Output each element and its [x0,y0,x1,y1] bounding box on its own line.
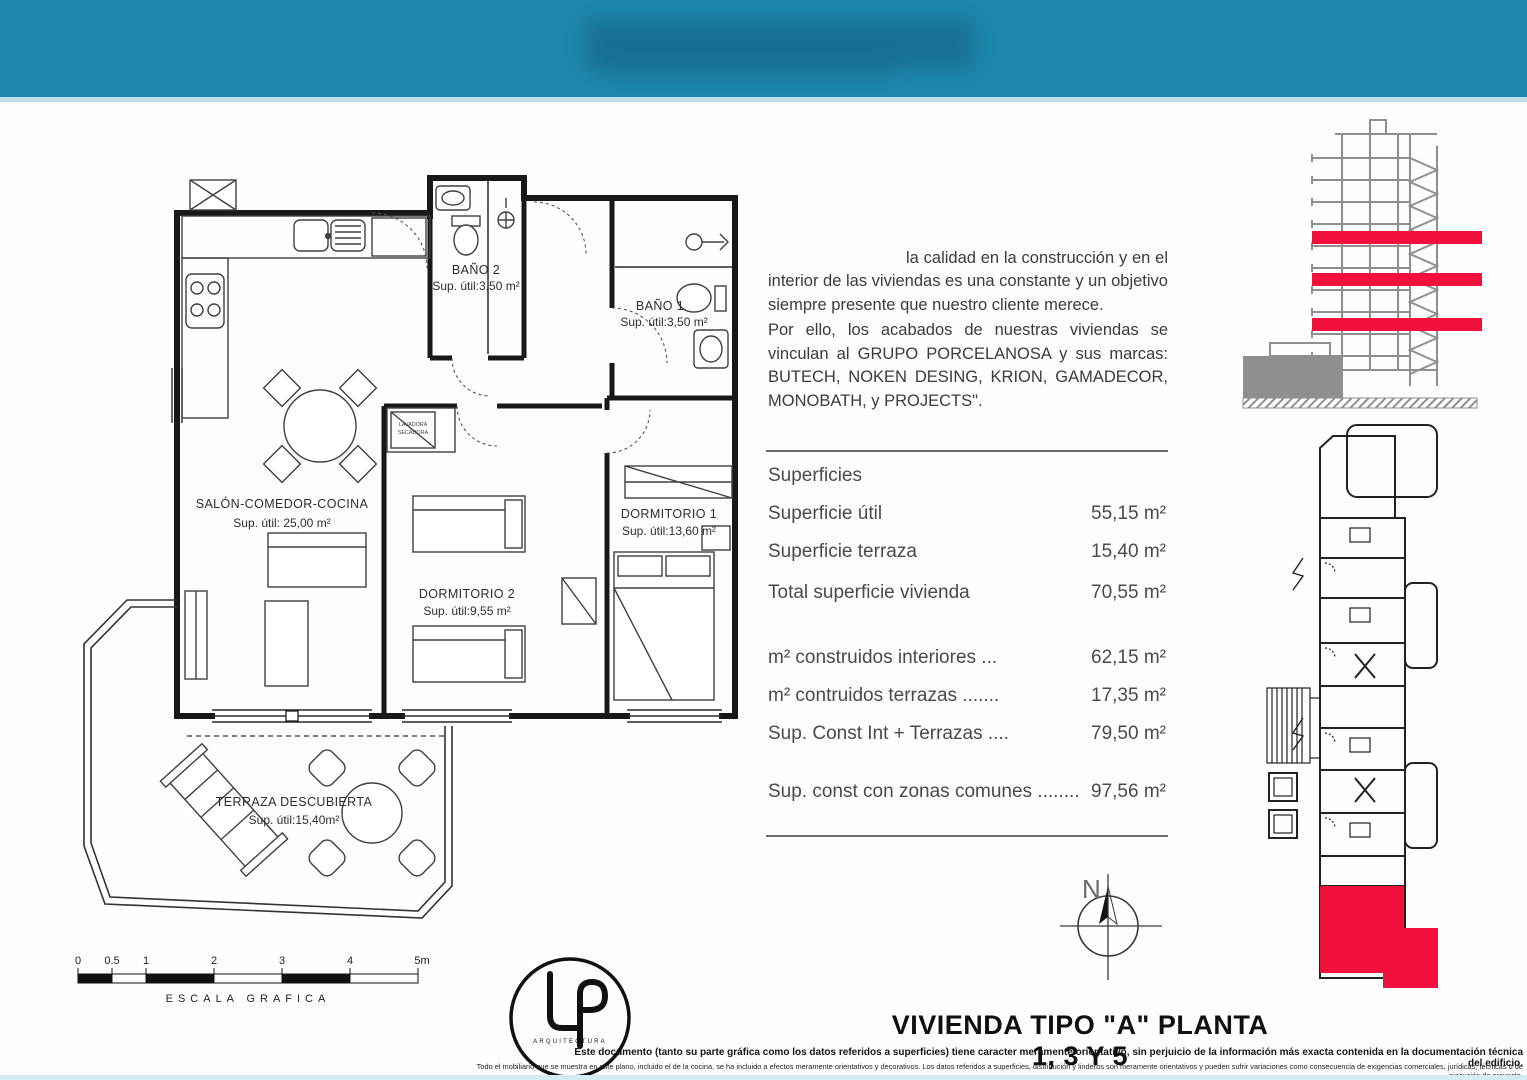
scale-tick: 3 [279,955,285,967]
header-band [0,0,1527,102]
table-row: Total superficie vivienda 70,55 m² [768,582,1166,604]
scale-tick: 4 [347,955,353,967]
logo-monogram [550,974,605,1046]
scale-tick: 0.5 [104,955,119,967]
row-value: 79,50 m² [1091,723,1166,745]
row-label: m² contruidos terrazas ....... [768,685,999,707]
scale-bar: 0 0.5 1 2 3 4 5m ESCALA GRAFICA [70,948,440,1008]
room-label-dorm2: DORMITORIO 2 [419,587,515,601]
row-label: Superficie útil [768,503,882,525]
compass-n-label: N [1082,874,1101,904]
row-value: 97,56 m² [1091,781,1166,803]
table-row: m² construidos interiores ... 62,15 m² [768,647,1166,669]
quality-paragraph-2: Por ello, los acabados de nuestras vivie… [768,319,1168,413]
superficies-table: Superficies Superficie útil 55,15 m² Sup… [766,445,1168,840]
room-area-terraza: Sup. útil:15,40m² [249,813,340,827]
elevation-ground [1243,356,1477,408]
compass-needle-outline [1108,886,1117,924]
scale-bar-label: ESCALA GRAFICA [166,993,331,1005]
room-label-bano1: BAÑO 1 [636,299,684,313]
row-label: Sup. Const Int + Terrazas .... [768,723,1009,745]
scale-bar-segments [78,968,418,983]
header-ghost-text-2 [600,58,900,74]
bath2-fixtures [436,186,514,255]
scale-tick: 1 [143,955,149,967]
north-compass: N [1058,862,1198,992]
elevation-lines [1270,120,1437,386]
highlighted-unit [1320,886,1438,988]
kitchen-furniture [182,180,430,418]
room-area-bano1: Sup. útil:3,50 m² [620,315,707,329]
room-label-bano2: BAÑO 2 [452,263,500,277]
row-value: 15,40 m² [1091,541,1166,563]
bottom-band [0,1075,1527,1080]
living-furniture [185,533,366,686]
row-label: Superficie terraza [768,541,917,563]
table-rule-top [766,450,1168,452]
row-label: Sup. const con zonas comunes ........ [768,781,1080,803]
room-label-salon: SALÓN-COMEDOR-COCINA [196,496,369,511]
room-area-bano2: Sup. útil:3,50 m² [432,279,519,293]
row-value: 17,35 m² [1091,685,1166,707]
terrace-furniture [160,744,438,880]
quality-paragraph: la calidad en la construcción y en el in… [768,247,1168,415]
scale-tick: 0 [75,955,81,967]
scale-bar-ticks: 0 0.5 1 2 3 4 5m [75,955,430,967]
plan-sheet: LAVADORA SECADORA [0,0,1527,1080]
bedroom1-furniture [614,466,732,700]
floor-plan: LAVADORA SECADORA [72,158,762,933]
room-label-dorm1: DORMITORIO 1 [621,507,717,521]
row-label: m² construidos interiores ... [768,647,997,669]
logo-caption: ARQUITECTURA [533,1039,607,1045]
room-label-terraza: TERRAZA DESCUBIERTA [216,795,373,809]
row-value: 62,15 m² [1091,647,1166,669]
scale-tick: 5m [414,955,429,967]
row-label: Total superficie vivienda [768,582,970,604]
bath1-fixtures [677,234,728,368]
row-value: 70,55 m² [1091,582,1166,604]
table-row: Superficie terraza 15,40 m² [768,541,1166,563]
room-area-dorm1: Sup. útil:13,60 m² [622,524,716,538]
table-row: Sup. Const Int + Terrazas .... 79,50 m² [768,723,1166,745]
scale-tick: 2 [211,955,217,967]
table-row: Sup. const con zonas comunes ........ 97… [768,781,1166,803]
table-row: m² contruidos terrazas ....... 17,35 m² [768,685,1166,707]
washer-label-line1: LAVADORA [399,422,428,428]
room-area-dorm2: Sup. útil:9,55 m² [423,604,510,618]
dining-set [264,370,377,483]
row-value: 55,15 m² [1091,503,1166,525]
building-elevation [1240,118,1500,418]
key-plan [1255,418,1525,1008]
washer-label-line2: SECADORA [398,430,429,436]
table-row: Superficie útil 55,15 m² [768,503,1166,525]
room-area-salon: Sup. útil: 25,00 m² [233,516,330,530]
table-rule-bottom [766,835,1168,837]
superficies-heading: Superficies [768,465,862,487]
quality-paragraph-1: la calidad en la construcción y en el in… [768,247,1168,317]
